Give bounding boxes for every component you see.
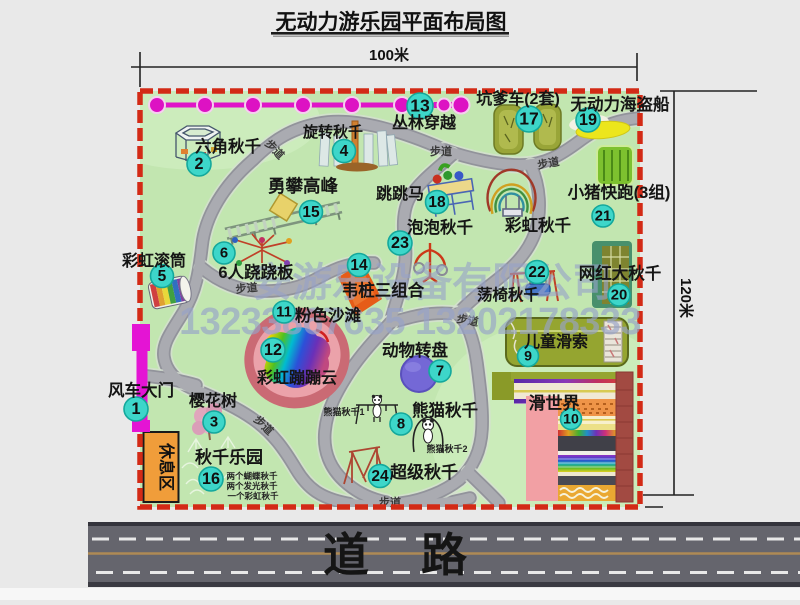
svg-text:小猪快跑(3组): 小猪快跑(3组) xyxy=(568,182,671,202)
svg-text:20: 20 xyxy=(611,288,628,304)
svg-text:7: 7 xyxy=(436,364,444,380)
svg-text:6人跷跷板: 6人跷跷板 xyxy=(218,262,294,282)
svg-text:两个蝴蝶秋千: 两个蝴蝶秋千 xyxy=(226,471,278,481)
svg-text:10: 10 xyxy=(563,411,579,427)
svg-text:一个彩虹秋千: 一个彩虹秋千 xyxy=(227,491,279,501)
svg-text:勇攀高峰: 勇攀高峰 xyxy=(268,176,338,196)
svg-text:无动力海盗船: 无动力海盗船 xyxy=(570,94,671,114)
svg-text:100米: 100米 xyxy=(369,46,410,64)
svg-text:粉色沙滩: 粉色沙滩 xyxy=(295,305,362,325)
svg-text:120米: 120米 xyxy=(677,278,695,319)
svg-text:3: 3 xyxy=(210,415,218,431)
svg-text:儿童滑索: 儿童滑索 xyxy=(523,332,588,351)
svg-text:樱花树: 樱花树 xyxy=(189,391,237,410)
svg-text:坑爹车(2套): 坑爹车(2套) xyxy=(476,89,560,108)
svg-text:16: 16 xyxy=(202,470,220,488)
svg-text:六角秋千: 六角秋千 xyxy=(195,136,261,156)
svg-text:安游乐设备有限公司: 安游乐设备有限公司 xyxy=(252,261,612,305)
svg-text:熊猫秋千2: 熊猫秋千2 xyxy=(426,443,467,454)
svg-text:17: 17 xyxy=(519,108,539,128)
svg-text:熊猫秋千1: 熊猫秋千1 xyxy=(323,406,364,417)
svg-text:24: 24 xyxy=(371,468,389,485)
svg-text:超级秋千: 超级秋千 xyxy=(390,462,458,482)
svg-text:无动力游乐园平面布局图: 无动力游乐园平面布局图 xyxy=(276,10,507,34)
svg-text:荡椅秋千: 荡椅秋千 xyxy=(477,285,540,304)
svg-text:18: 18 xyxy=(428,194,446,211)
svg-text:泡泡秋千: 泡泡秋千 xyxy=(407,217,473,237)
svg-text:22: 22 xyxy=(528,264,546,281)
svg-text:4: 4 xyxy=(340,143,349,160)
svg-text:两个发光秋千: 两个发光秋千 xyxy=(226,481,278,491)
svg-text:熊猫秋千: 熊猫秋千 xyxy=(412,400,478,420)
svg-text:道: 道 xyxy=(323,529,369,581)
svg-text:2: 2 xyxy=(194,155,203,173)
svg-text:跳跳马: 跳跳马 xyxy=(376,184,424,203)
svg-text:旋转秋千: 旋转秋千 xyxy=(302,123,363,141)
svg-text:13: 13 xyxy=(410,95,430,115)
svg-text:11: 11 xyxy=(276,305,292,321)
svg-text:15: 15 xyxy=(302,204,320,221)
svg-text:休息区: 休息区 xyxy=(157,442,176,491)
svg-text:21: 21 xyxy=(595,209,612,225)
svg-text:网红大秋千: 网红大秋千 xyxy=(579,263,662,283)
svg-text:丛林穿越: 丛林穿越 xyxy=(392,113,457,132)
svg-text:8: 8 xyxy=(397,417,405,433)
svg-text:1: 1 xyxy=(131,400,140,418)
svg-text:5: 5 xyxy=(158,268,167,285)
svg-text:路: 路 xyxy=(421,529,468,581)
svg-text:彩虹蹦蹦云: 彩虹蹦蹦云 xyxy=(256,368,337,387)
svg-text:滑世界: 滑世界 xyxy=(529,394,580,413)
svg-text:风车大门: 风车大门 xyxy=(108,380,174,400)
svg-text:6: 6 xyxy=(220,246,228,262)
svg-text:12: 12 xyxy=(264,341,282,359)
svg-text:步道: 步道 xyxy=(430,144,452,158)
svg-text:彩虹秋千: 彩虹秋千 xyxy=(504,215,571,235)
svg-text:韦桩三组合: 韦桩三组合 xyxy=(342,280,425,300)
svg-text:动物转盘: 动物转盘 xyxy=(382,340,449,360)
svg-text:彩虹滚筒: 彩虹滚筒 xyxy=(121,251,186,270)
svg-text:14: 14 xyxy=(350,257,368,274)
svg-text:秋千乐园: 秋千乐园 xyxy=(195,447,263,467)
